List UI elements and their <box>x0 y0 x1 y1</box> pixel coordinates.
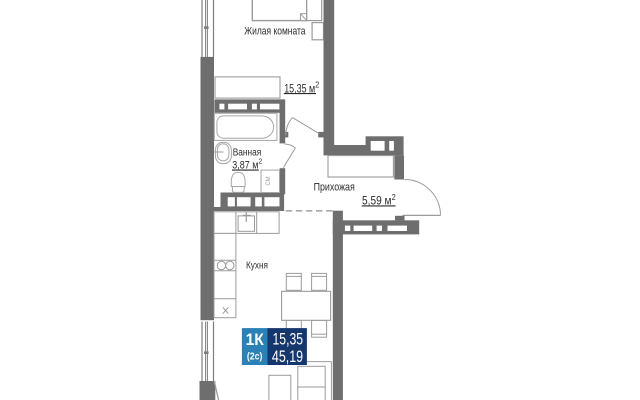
svg-text:Прихожая: Прихожая <box>314 182 355 194</box>
svg-text:15,35: 15,35 <box>273 329 304 348</box>
svg-text:Ванная: Ванная <box>233 148 262 159</box>
svg-text:1К: 1К <box>246 330 265 349</box>
svg-text:2: 2 <box>259 157 263 166</box>
svg-text:2: 2 <box>392 193 396 202</box>
svg-text:2: 2 <box>315 81 319 90</box>
svg-text:СМ: СМ <box>266 176 272 185</box>
svg-text:(2с): (2с) <box>247 352 263 363</box>
svg-text:Кухня: Кухня <box>246 261 268 272</box>
svg-text:45,19: 45,19 <box>272 347 303 366</box>
svg-text:Жилая комната: Жилая комната <box>244 26 305 38</box>
